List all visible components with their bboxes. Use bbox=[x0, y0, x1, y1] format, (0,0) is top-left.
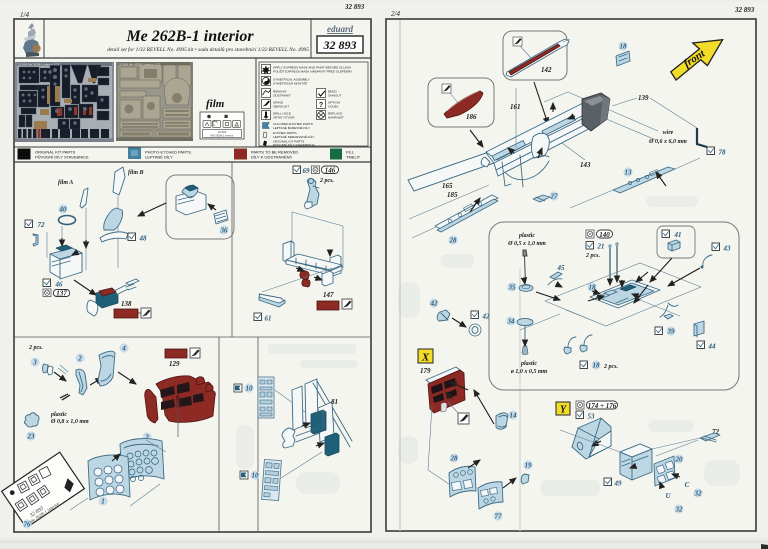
svg-text:40: 40 bbox=[59, 206, 68, 214]
svg-text:ODSTRANIT: ODSTRANIT bbox=[273, 94, 291, 98]
svg-text:32 893 Me 262B-1 interior 1/: 32 893 Me 262B-1 interior 1/32 bbox=[119, 63, 161, 67]
svg-text:2 pcs.: 2 pcs. bbox=[585, 253, 600, 259]
svg-text:42: 42 bbox=[482, 313, 491, 321]
svg-text:film B: film B bbox=[128, 170, 144, 176]
svg-text:eduard: eduard bbox=[327, 24, 354, 34]
svg-text:161: 161 bbox=[510, 103, 521, 111]
svg-text:78: 78 bbox=[719, 149, 727, 157]
svg-text:61: 61 bbox=[265, 315, 272, 323]
svg-text:3: 3 bbox=[32, 359, 37, 367]
svg-text:POUŽÍT EXPRESS MASK NABARVIT P: POUŽÍT EXPRESS MASK NABARVIT PŘED SLEPEN… bbox=[273, 69, 352, 74]
svg-text:36: 36 bbox=[220, 227, 229, 235]
svg-text:PŮVODNÍ DÍLY STAVEBNICE: PŮVODNÍ DÍLY STAVEBNICE bbox=[35, 155, 89, 160]
svg-text:19: 19 bbox=[525, 462, 533, 470]
svg-text:81: 81 bbox=[331, 398, 338, 406]
svg-text:2 pcs.: 2 pcs. bbox=[28, 345, 43, 351]
svg-text:PŮVODNÍ DÍLY STAVEBNICE: PŮVODNÍ DÍLY STAVEBNICE bbox=[273, 142, 315, 147]
svg-text:142: 142 bbox=[541, 66, 552, 74]
svg-text:18: 18 bbox=[593, 362, 601, 370]
svg-text:Me 262B-1 interior: Me 262B-1 interior bbox=[125, 28, 254, 45]
svg-text:1: 1 bbox=[101, 498, 105, 506]
svg-text:35: 35 bbox=[508, 284, 517, 292]
svg-text:20: 20 bbox=[675, 456, 684, 464]
svg-text:14: 14 bbox=[510, 412, 518, 420]
svg-text:2: 2 bbox=[77, 355, 82, 363]
svg-text:VRTAT OTVOR: VRTAT OTVOR bbox=[273, 116, 295, 120]
svg-text:28: 28 bbox=[450, 455, 459, 463]
svg-text:film A: film A bbox=[58, 180, 73, 186]
svg-text:138: 138 bbox=[121, 300, 132, 308]
svg-text:TMELIT: TMELIT bbox=[346, 155, 361, 160]
svg-text:OHNOUT: OHNOUT bbox=[328, 94, 342, 98]
svg-text:28: 28 bbox=[449, 237, 458, 245]
svg-text:41: 41 bbox=[674, 231, 682, 239]
svg-text:72: 72 bbox=[38, 221, 46, 229]
svg-text:2/4: 2/4 bbox=[391, 10, 400, 18]
svg-text:OBROUSIT: OBROUSIT bbox=[273, 105, 289, 109]
svg-text:2 pcs.: 2 pcs. bbox=[319, 178, 334, 184]
svg-text:165: 165 bbox=[442, 182, 453, 190]
svg-text:ø 1,0 x 0,5 mm: ø 1,0 x 0,5 mm bbox=[510, 369, 548, 375]
svg-text:film: film bbox=[206, 98, 225, 110]
svg-text:VOLBA: VOLBA bbox=[328, 105, 339, 109]
svg-text:18: 18 bbox=[620, 43, 628, 51]
svg-text:plastic: plastic bbox=[50, 412, 67, 418]
svg-text:C: C bbox=[685, 481, 690, 489]
svg-text:42: 42 bbox=[430, 300, 439, 308]
svg-text:69: 69 bbox=[303, 167, 311, 175]
svg-text:LEPTANÉ BAREVNÉ DÍLY: LEPTANÉ BAREVNÉ DÍLY bbox=[273, 125, 310, 130]
svg-text:LEPTANÉ NEBARVENÉ DÍLY: LEPTANÉ NEBARVENÉ DÍLY bbox=[273, 134, 314, 139]
svg-text:45: 45 bbox=[557, 264, 566, 272]
svg-text:NAHRADIT: NAHRADIT bbox=[328, 116, 344, 120]
svg-text:13: 13 bbox=[625, 169, 633, 177]
svg-text:139: 139 bbox=[638, 94, 649, 102]
svg-text:X: X bbox=[421, 352, 430, 364]
svg-text:wire: wire bbox=[663, 130, 674, 136]
svg-text:137: 137 bbox=[56, 290, 67, 298]
svg-text:49: 49 bbox=[614, 480, 623, 488]
svg-text:1/4: 1/4 bbox=[20, 11, 29, 19]
svg-text:44: 44 bbox=[708, 343, 717, 351]
svg-text:129: 129 bbox=[169, 360, 180, 368]
svg-text:4: 4 bbox=[121, 345, 126, 353]
svg-text:48: 48 bbox=[139, 235, 148, 243]
svg-text:?: ? bbox=[319, 102, 323, 109]
svg-text:SYMETRICKÁ MONTÁŽ: SYMETRICKÁ MONTÁŽ bbox=[273, 81, 307, 86]
svg-text:34: 34 bbox=[507, 318, 516, 326]
svg-text:147: 147 bbox=[323, 291, 334, 299]
svg-text:Ø 0,8 x 1,0 mm: Ø 0,8 x 1,0 mm bbox=[50, 419, 89, 425]
svg-text:53: 53 bbox=[588, 413, 596, 421]
svg-text:46: 46 bbox=[55, 281, 64, 289]
svg-text:143: 143 bbox=[580, 161, 591, 169]
svg-text:39: 39 bbox=[667, 328, 676, 336]
svg-text:Ø 0,5 x 1,0 mm: Ø 0,5 x 1,0 mm bbox=[507, 241, 546, 247]
svg-text:Me 262B-1 interior: Me 262B-1 interior bbox=[210, 134, 233, 138]
svg-text:185: 185 bbox=[447, 191, 458, 199]
svg-text:23: 23 bbox=[27, 433, 36, 441]
svg-text:27: 27 bbox=[550, 193, 559, 201]
svg-text:DÍLY K ODSTRANĚNÍ!: DÍLY K ODSTRANĚNÍ! bbox=[251, 155, 292, 160]
svg-text:32 893: 32 893 bbox=[344, 3, 365, 11]
svg-text:76: 76 bbox=[24, 521, 32, 529]
svg-text:32 893: 32 893 bbox=[734, 6, 755, 14]
svg-text:179: 179 bbox=[420, 367, 431, 375]
svg-text:21: 21 bbox=[597, 243, 605, 251]
svg-text:2 pcs.: 2 pcs. bbox=[603, 364, 618, 370]
svg-text:10: 10 bbox=[252, 472, 260, 480]
svg-text:32 893: 32 893 bbox=[323, 38, 357, 52]
svg-text:77: 77 bbox=[495, 513, 503, 521]
svg-text:plastic: plastic bbox=[520, 361, 537, 367]
svg-text:10: 10 bbox=[246, 385, 254, 393]
svg-text:32: 32 bbox=[675, 506, 684, 514]
svg-text:32 893 Me 262B-1 interior 1/: 32 893 Me 262B-1 interior 1/32 bbox=[18, 63, 60, 67]
svg-text:Ø 0,6 x 6,0 mm: Ø 0,6 x 6,0 mm bbox=[648, 139, 687, 145]
svg-text:Y: Y bbox=[560, 405, 567, 416]
svg-text:LEPTANÉ DÍLY: LEPTANÉ DÍLY bbox=[145, 155, 173, 160]
svg-text:43: 43 bbox=[723, 245, 732, 253]
svg-text:plastic: plastic bbox=[518, 233, 535, 239]
svg-text:174 + 176: 174 + 176 bbox=[588, 402, 617, 410]
svg-text:140: 140 bbox=[599, 231, 610, 239]
svg-text:32: 32 bbox=[694, 490, 703, 498]
svg-text:186: 186 bbox=[466, 113, 477, 121]
svg-text:detail set for 1/32 REVELL N: detail set for 1/32 REVELL No. 4995 kit … bbox=[107, 46, 309, 53]
svg-text:146: 146 bbox=[325, 166, 336, 174]
svg-text:18: 18 bbox=[589, 284, 597, 292]
